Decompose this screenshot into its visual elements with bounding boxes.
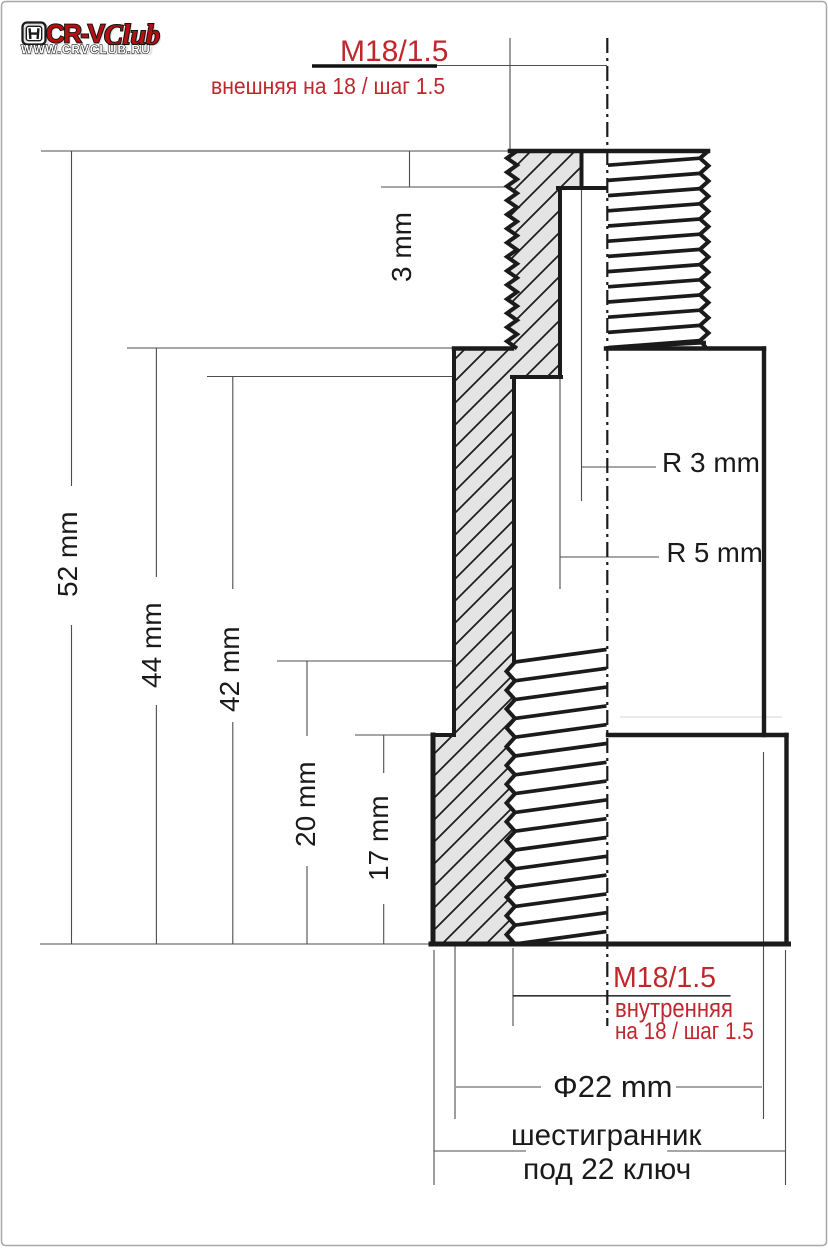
svg-text:44 mm: 44 mm xyxy=(136,602,167,688)
svg-text:20 mm: 20 mm xyxy=(290,761,321,847)
svg-text:52 mm: 52 mm xyxy=(52,511,83,597)
svg-text:42 mm: 42 mm xyxy=(214,626,245,712)
svg-text:M18/1.5: M18/1.5 xyxy=(613,962,716,994)
svg-text:под 22 ключ: под 22 ключ xyxy=(523,1153,691,1186)
svg-text:шестигранник: шестигранник xyxy=(511,1119,702,1152)
svg-text:на 18 / шаг 1.5: на 18 / шаг 1.5 xyxy=(615,1018,754,1045)
svg-text:3 mm: 3 mm xyxy=(386,212,417,282)
svg-text:WWW.CRVCLUB.RU: WWW.CRVCLUB.RU xyxy=(21,43,151,57)
svg-text:внешняя на 18 / шаг 1.5: внешняя на 18 / шаг 1.5 xyxy=(211,73,445,99)
svg-text:R 3 mm: R 3 mm xyxy=(662,447,760,478)
svg-text:17 mm: 17 mm xyxy=(363,795,394,881)
svg-text:R 5 mm: R 5 mm xyxy=(667,537,763,568)
svg-text:Φ22 mm: Φ22 mm xyxy=(553,1069,672,1104)
svg-text:M18/1.5: M18/1.5 xyxy=(340,35,448,68)
